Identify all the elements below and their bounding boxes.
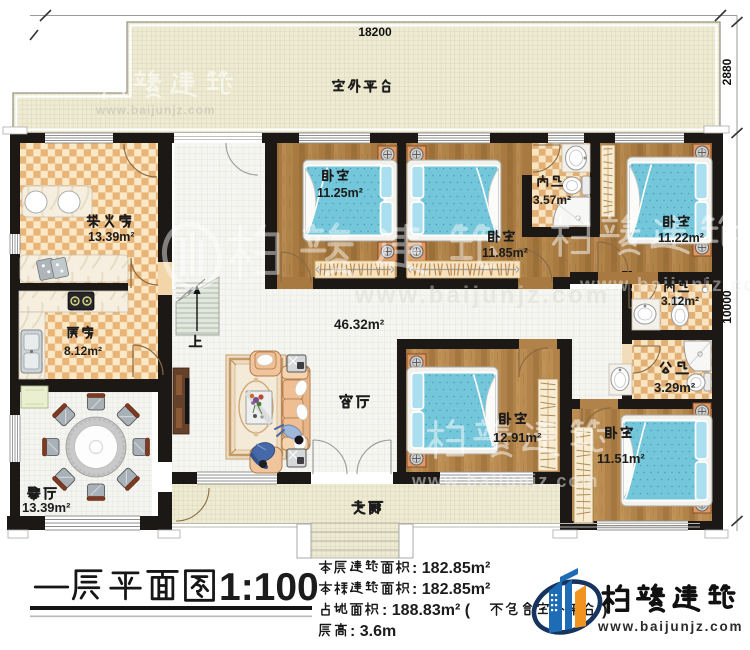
svg-text:3.29m²: 3.29m² <box>654 380 696 395</box>
svg-text:11.22m²: 11.22m² <box>658 231 704 245</box>
svg-text:www.baijunjz.com: www.baijunjz.com <box>597 619 743 634</box>
svg-text:11.51m²: 11.51m² <box>597 451 645 466</box>
svg-text:1:100: 1:100 <box>219 566 319 609</box>
svg-text:www.baijunjz.com: www.baijunjz.com <box>354 282 610 309</box>
svg-text:: 3.6m: : 3.6m <box>350 623 396 640</box>
svg-text:11.85m²: 11.85m² <box>482 246 528 260</box>
svg-text:2880: 2880 <box>720 58 734 85</box>
svg-text:18200: 18200 <box>358 25 392 39</box>
svg-text:3.57m²: 3.57m² <box>533 193 571 207</box>
svg-text:46.32m²: 46.32m² <box>334 317 385 332</box>
svg-text:3.12m²: 3.12m² <box>661 294 699 308</box>
svg-text:www.baijunjz.com: www.baijunjz.com <box>411 471 599 491</box>
svg-text:: 182.85m²: : 182.85m² <box>412 560 490 577</box>
svg-text:13.39m²: 13.39m² <box>22 500 71 515</box>
svg-text:: 188.83m² (: : 188.83m² ( <box>382 602 471 619</box>
svg-text:13.39m²: 13.39m² <box>88 230 135 244</box>
svg-text:www.baijunjz.com: www.baijunjz.com <box>95 103 216 117</box>
svg-text:11.25m²: 11.25m² <box>317 186 363 200</box>
svg-text:12.91m²: 12.91m² <box>493 430 542 445</box>
svg-text:8.12m²: 8.12m² <box>64 344 102 358</box>
svg-text:: 182.85m²: : 182.85m² <box>412 581 490 598</box>
